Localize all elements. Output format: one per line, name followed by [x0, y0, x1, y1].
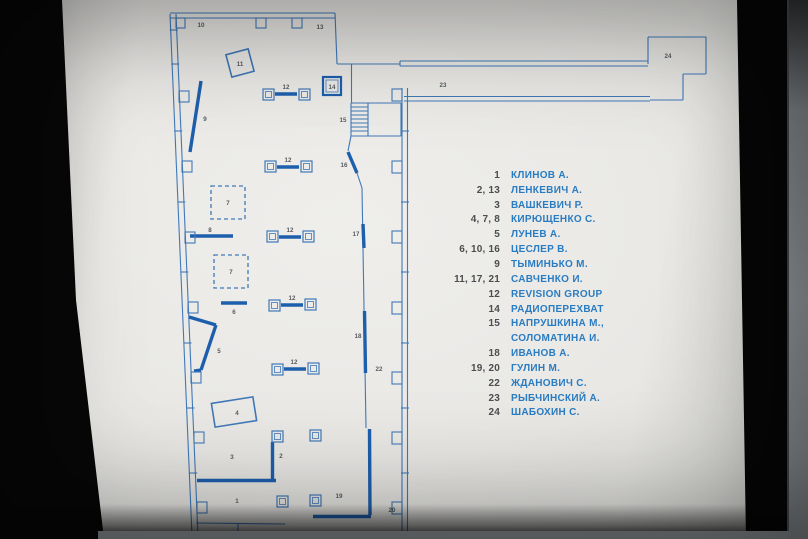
plan-label: 3 — [230, 454, 234, 461]
plan-label: 19 — [336, 493, 343, 500]
plan-label: 13 — [317, 24, 324, 31]
legend-name: ЦЕСЛЕР В. — [511, 244, 568, 255]
legend-name: ЛУНЕВ А. — [511, 229, 561, 240]
plan-label: 4 — [235, 410, 239, 417]
plan-label: 17 — [353, 231, 360, 238]
exhibit-wall — [363, 224, 364, 248]
wall-column — [392, 89, 402, 101]
legend-number: 4, 7, 8 — [420, 214, 500, 225]
plan-label: 20 — [389, 507, 396, 514]
column-outer — [269, 300, 280, 311]
plan-label: 5 — [217, 348, 221, 355]
column-inner — [280, 499, 286, 505]
column-outer — [299, 89, 310, 100]
wall-column — [197, 502, 207, 513]
wall-line — [196, 523, 285, 524]
legend-number: 23 — [420, 393, 500, 404]
right-wall-strip — [787, 0, 808, 539]
bottom-floor-strip — [98, 531, 790, 539]
legend-name: РАДИОПЕРЕХВАТ — [511, 304, 604, 315]
column-outer — [310, 495, 321, 506]
legend-number: 6, 10, 16 — [420, 244, 500, 255]
legend-row: 2, 13ЛЕНКЕВИЧ А. — [420, 183, 604, 198]
legend-row: СОЛОМАТИНА И. — [420, 331, 604, 346]
column-inner — [304, 164, 310, 170]
column-outer — [265, 161, 276, 172]
plan-label: 22 — [376, 366, 383, 373]
column-inner — [272, 303, 278, 309]
column-outer — [310, 430, 321, 441]
wall-column — [194, 432, 204, 443]
legend-number: 14 — [420, 304, 500, 315]
exhibit-wall — [370, 429, 371, 515]
wall-column — [392, 231, 402, 243]
column-inner — [308, 302, 314, 308]
legend-row: 24ШАБОХИН С. — [420, 406, 604, 421]
exhibit-wall — [348, 152, 357, 173]
floor-plan-svg: 1013111214232491512167812177126512182243… — [0, 0, 808, 539]
exhibit-wall — [190, 81, 201, 152]
legend-name: ЛЕНКЕВИЧ А. — [511, 185, 582, 196]
legend-number: 12 — [420, 289, 500, 300]
plan-label: 24 — [665, 53, 672, 60]
plan-label: 6 — [232, 309, 236, 316]
plan-label: 9 — [203, 116, 207, 123]
wall-column — [392, 372, 402, 384]
column-outer — [263, 89, 274, 100]
plan-label: 7 — [229, 269, 233, 276]
legend-row: 6, 10, 16ЦЕСЛЕР В. — [420, 242, 604, 257]
photo-of-floorplan-sign: 1013111214232491512167812177126512182243… — [0, 0, 808, 539]
exhibit-wall — [201, 325, 216, 370]
legend-number: 11, 17, 21 — [420, 274, 500, 285]
legend-row: 9ТЫМИНЬКО М. — [420, 257, 604, 272]
column-inner — [306, 234, 312, 240]
legend-name: ТЫМИНЬКО М. — [511, 259, 588, 270]
plan-label: 14 — [329, 84, 336, 91]
plan-label: 7 — [226, 200, 230, 207]
legend-row: 5ЛУНЕВ А. — [420, 227, 604, 242]
exhibit-wall — [365, 311, 366, 373]
plan-label: 12 — [289, 295, 296, 302]
plan-label: 8 — [208, 227, 212, 234]
legend-number: 9 — [420, 259, 500, 270]
legend-number: 2, 13 — [420, 185, 500, 196]
legend-row: 4, 7, 8КИРЮЩЕНКО С. — [420, 213, 604, 228]
plan-label: 12 — [291, 359, 298, 366]
column-outer — [277, 496, 288, 507]
plan-label: 23 — [440, 82, 447, 89]
plan-label: 1 — [235, 498, 239, 505]
column-outer — [272, 431, 283, 442]
column-outer — [308, 363, 319, 374]
plan-label: 12 — [283, 84, 290, 91]
column-outer — [305, 299, 316, 310]
tilted-frame — [211, 397, 256, 427]
wall-column — [191, 372, 201, 383]
legend-row: 12REVISION GROUP — [420, 287, 604, 302]
column-outer — [303, 231, 314, 242]
wall-column — [292, 18, 302, 28]
column-inner — [270, 234, 276, 240]
plan-label: 18 — [355, 333, 362, 340]
legend-number: 3 — [420, 200, 500, 211]
column-inner — [302, 92, 308, 98]
legend-row: 22ЖДАНОВИЧ С. — [420, 376, 604, 391]
plan-label: 15 — [340, 117, 347, 124]
legend-name: СОЛОМАТИНА И. — [511, 333, 600, 344]
wall-column — [392, 302, 402, 314]
legend-name: САВЧЕНКО И. — [511, 274, 583, 285]
column-outer — [301, 161, 312, 172]
wall-column — [392, 161, 402, 173]
plan-label: 2 — [279, 453, 283, 460]
legend-row: 11, 17, 21САВЧЕНКО И. — [420, 272, 604, 287]
column-inner — [275, 367, 281, 373]
legend-name: НАПРУШКИНА М., — [511, 318, 604, 329]
legend-name: РЫБЧИНСКИЙ А. — [511, 393, 600, 404]
legend-number: 22 — [420, 378, 500, 389]
column-inner — [268, 164, 274, 170]
legend-row: 23РЫБЧИНСКИЙ А. — [420, 391, 604, 406]
wall-line — [348, 136, 351, 151]
legend-row: 15НАПРУШКИНА М., — [420, 316, 604, 331]
legend-name: ШАБОХИН С. — [511, 407, 580, 418]
plan-label: 10 — [198, 22, 205, 29]
column-inner — [311, 366, 317, 372]
legend-row: 19, 20ГУЛИН М. — [420, 361, 604, 376]
column-inner — [313, 433, 319, 439]
wall-column — [256, 18, 266, 28]
wall-line — [335, 13, 337, 64]
wall-column — [179, 91, 189, 102]
legend-name: ВАШКЕВИЧ Р. — [511, 200, 583, 211]
wall-column — [182, 161, 192, 172]
legend-number: 15 — [420, 318, 500, 329]
legend-name: REVISION GROUP — [511, 289, 602, 300]
legend-row: 14РАДИОПЕРЕХВАТ — [420, 302, 604, 317]
legend-name: КЛИНОВ А. — [511, 170, 569, 181]
legend-number: 1 — [420, 170, 500, 181]
plan-label: 12 — [285, 157, 292, 164]
legend-name: ГУЛИН М. — [511, 363, 560, 374]
legend-row: 1КЛИНОВ А. — [420, 168, 604, 183]
column-inner — [266, 92, 272, 98]
plan-label: 16 — [341, 162, 348, 169]
exhibit-wall — [189, 317, 216, 325]
column-outer — [267, 231, 278, 242]
wall-column — [392, 432, 402, 444]
column-outer — [272, 364, 283, 375]
legend-name: ЖДАНОВИЧ С. — [511, 378, 587, 389]
column-inner — [275, 434, 281, 440]
plan-label: 12 — [287, 227, 294, 234]
plan-label: 11 — [237, 61, 244, 68]
legend-name: ИВАНОВ А. — [511, 348, 570, 359]
wall-line — [357, 173, 362, 188]
wall-column — [176, 18, 185, 28]
legend-number: 5 — [420, 229, 500, 240]
column-inner — [313, 498, 319, 504]
legend-row: 18ИВАНОВ А. — [420, 346, 604, 361]
legend-number: 19, 20 — [420, 363, 500, 374]
legend: 1КЛИНОВ А.2, 13ЛЕНКЕВИЧ А.3ВАШКЕВИЧ Р.4,… — [420, 168, 604, 420]
exhibit-wall — [194, 370, 201, 371]
legend-number: 24 — [420, 407, 500, 418]
legend-row: 3ВАШКЕВИЧ Р. — [420, 198, 604, 213]
legend-name: КИРЮЩЕНКО С. — [511, 214, 596, 225]
legend-number: 18 — [420, 348, 500, 359]
wall-column — [188, 302, 198, 313]
